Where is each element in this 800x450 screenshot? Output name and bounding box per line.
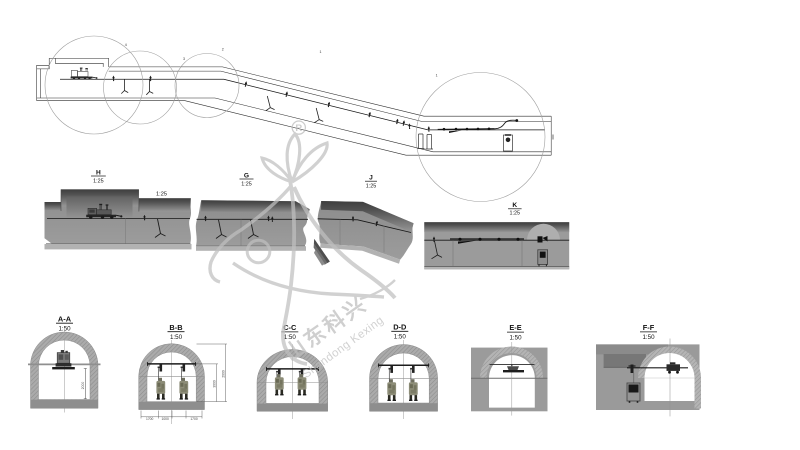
svg-text:3000: 3000	[212, 380, 216, 388]
svg-text:3: 3	[183, 57, 185, 61]
svg-text:A-A: A-A	[58, 314, 72, 323]
svg-text:1000: 1000	[162, 417, 170, 421]
svg-text:J: J	[369, 175, 373, 182]
svg-text:G: G	[244, 173, 249, 180]
svg-text:1:50: 1:50	[170, 334, 183, 341]
svg-text:H: H	[96, 170, 101, 177]
svg-text:1:50: 1:50	[58, 326, 71, 333]
svg-text:E-E: E-E	[509, 323, 521, 332]
svg-text:1:25: 1:25	[241, 182, 252, 188]
svg-text:1:25: 1:25	[510, 211, 521, 217]
svg-text:1:50: 1:50	[642, 334, 655, 341]
svg-text:1700: 1700	[146, 417, 154, 421]
svg-text:B-B: B-B	[169, 323, 182, 332]
svg-text:1:50: 1:50	[394, 334, 407, 341]
svg-text:2000: 2000	[81, 382, 85, 390]
svg-text:2: 2	[222, 48, 224, 52]
svg-text:D-D: D-D	[393, 322, 407, 331]
svg-text:2000: 2000	[221, 370, 225, 378]
svg-text:K: K	[512, 202, 517, 209]
svg-text:1700: 1700	[190, 417, 198, 421]
svg-text:1:25: 1:25	[366, 184, 377, 190]
svg-text:R: R	[295, 123, 302, 134]
svg-text:1: 1	[436, 74, 438, 78]
svg-text:1:25: 1:25	[156, 192, 167, 198]
svg-text:F-F: F-F	[643, 323, 655, 332]
svg-text:4: 4	[125, 43, 127, 47]
svg-text:1:50: 1:50	[509, 334, 522, 341]
svg-text:1:25: 1:25	[93, 179, 104, 185]
svg-text:1: 1	[320, 50, 322, 54]
